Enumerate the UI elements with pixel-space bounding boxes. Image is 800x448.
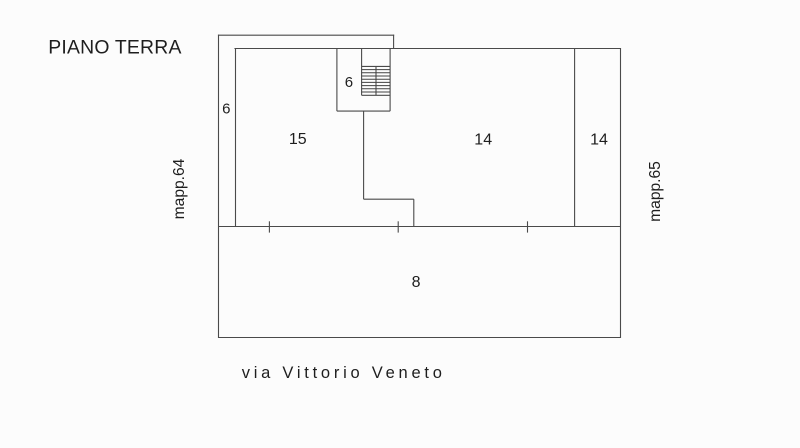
svg-text:8: 8: [412, 274, 421, 291]
svg-text:PIANO TERRA: PIANO TERRA: [48, 37, 181, 59]
svg-text:6: 6: [345, 74, 353, 91]
svg-text:via Vittorio Veneto: via Vittorio Veneto: [242, 364, 446, 382]
svg-text:6: 6: [222, 101, 230, 118]
svg-text:14: 14: [590, 132, 608, 149]
svg-text:mapp.65: mapp.65: [647, 161, 664, 222]
svg-text:15: 15: [289, 131, 307, 148]
svg-text:mapp.64: mapp.64: [171, 158, 188, 219]
svg-text:14: 14: [474, 131, 492, 148]
